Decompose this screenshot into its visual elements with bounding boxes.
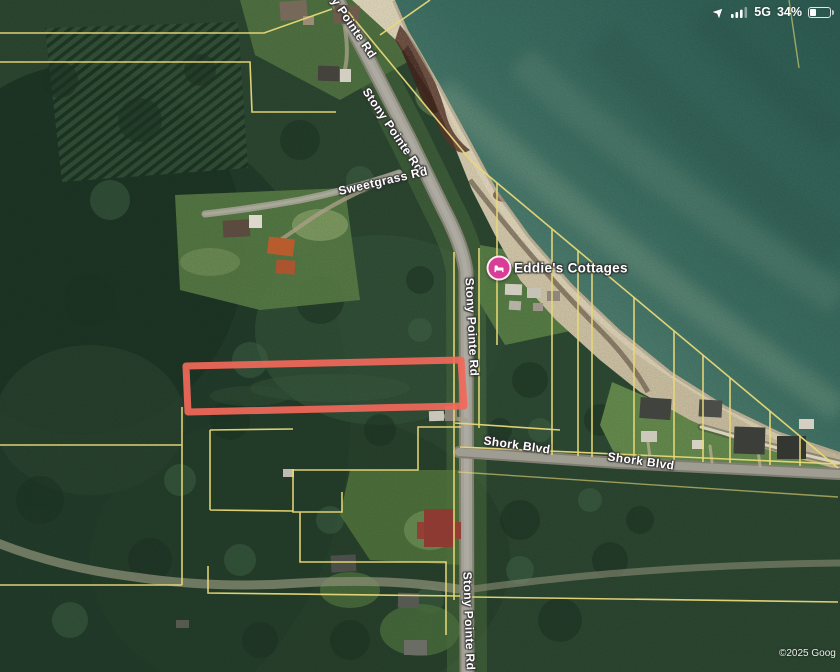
battery-percent-label: 34% bbox=[777, 5, 802, 19]
map-attribution: ©2025 Goog bbox=[779, 648, 836, 659]
map-canvas[interactable] bbox=[0, 0, 840, 672]
status-bar: 5G 34% bbox=[713, 5, 831, 19]
texture-overlay bbox=[0, 0, 840, 672]
cellular-signal-icon bbox=[731, 7, 748, 18]
satellite-map-screenshot[interactable]: Stony Pointe Rd Stony Pointe Rd Sweetgra… bbox=[0, 0, 840, 672]
location-arrow-icon bbox=[713, 6, 725, 18]
battery-icon bbox=[808, 7, 831, 18]
poi-label[interactable]: Eddie's Cottages bbox=[514, 261, 628, 276]
lodging-marker-icon[interactable] bbox=[487, 256, 512, 281]
bed-icon bbox=[494, 263, 505, 274]
battery-fill bbox=[810, 9, 816, 16]
network-type-label: 5G bbox=[754, 5, 771, 19]
